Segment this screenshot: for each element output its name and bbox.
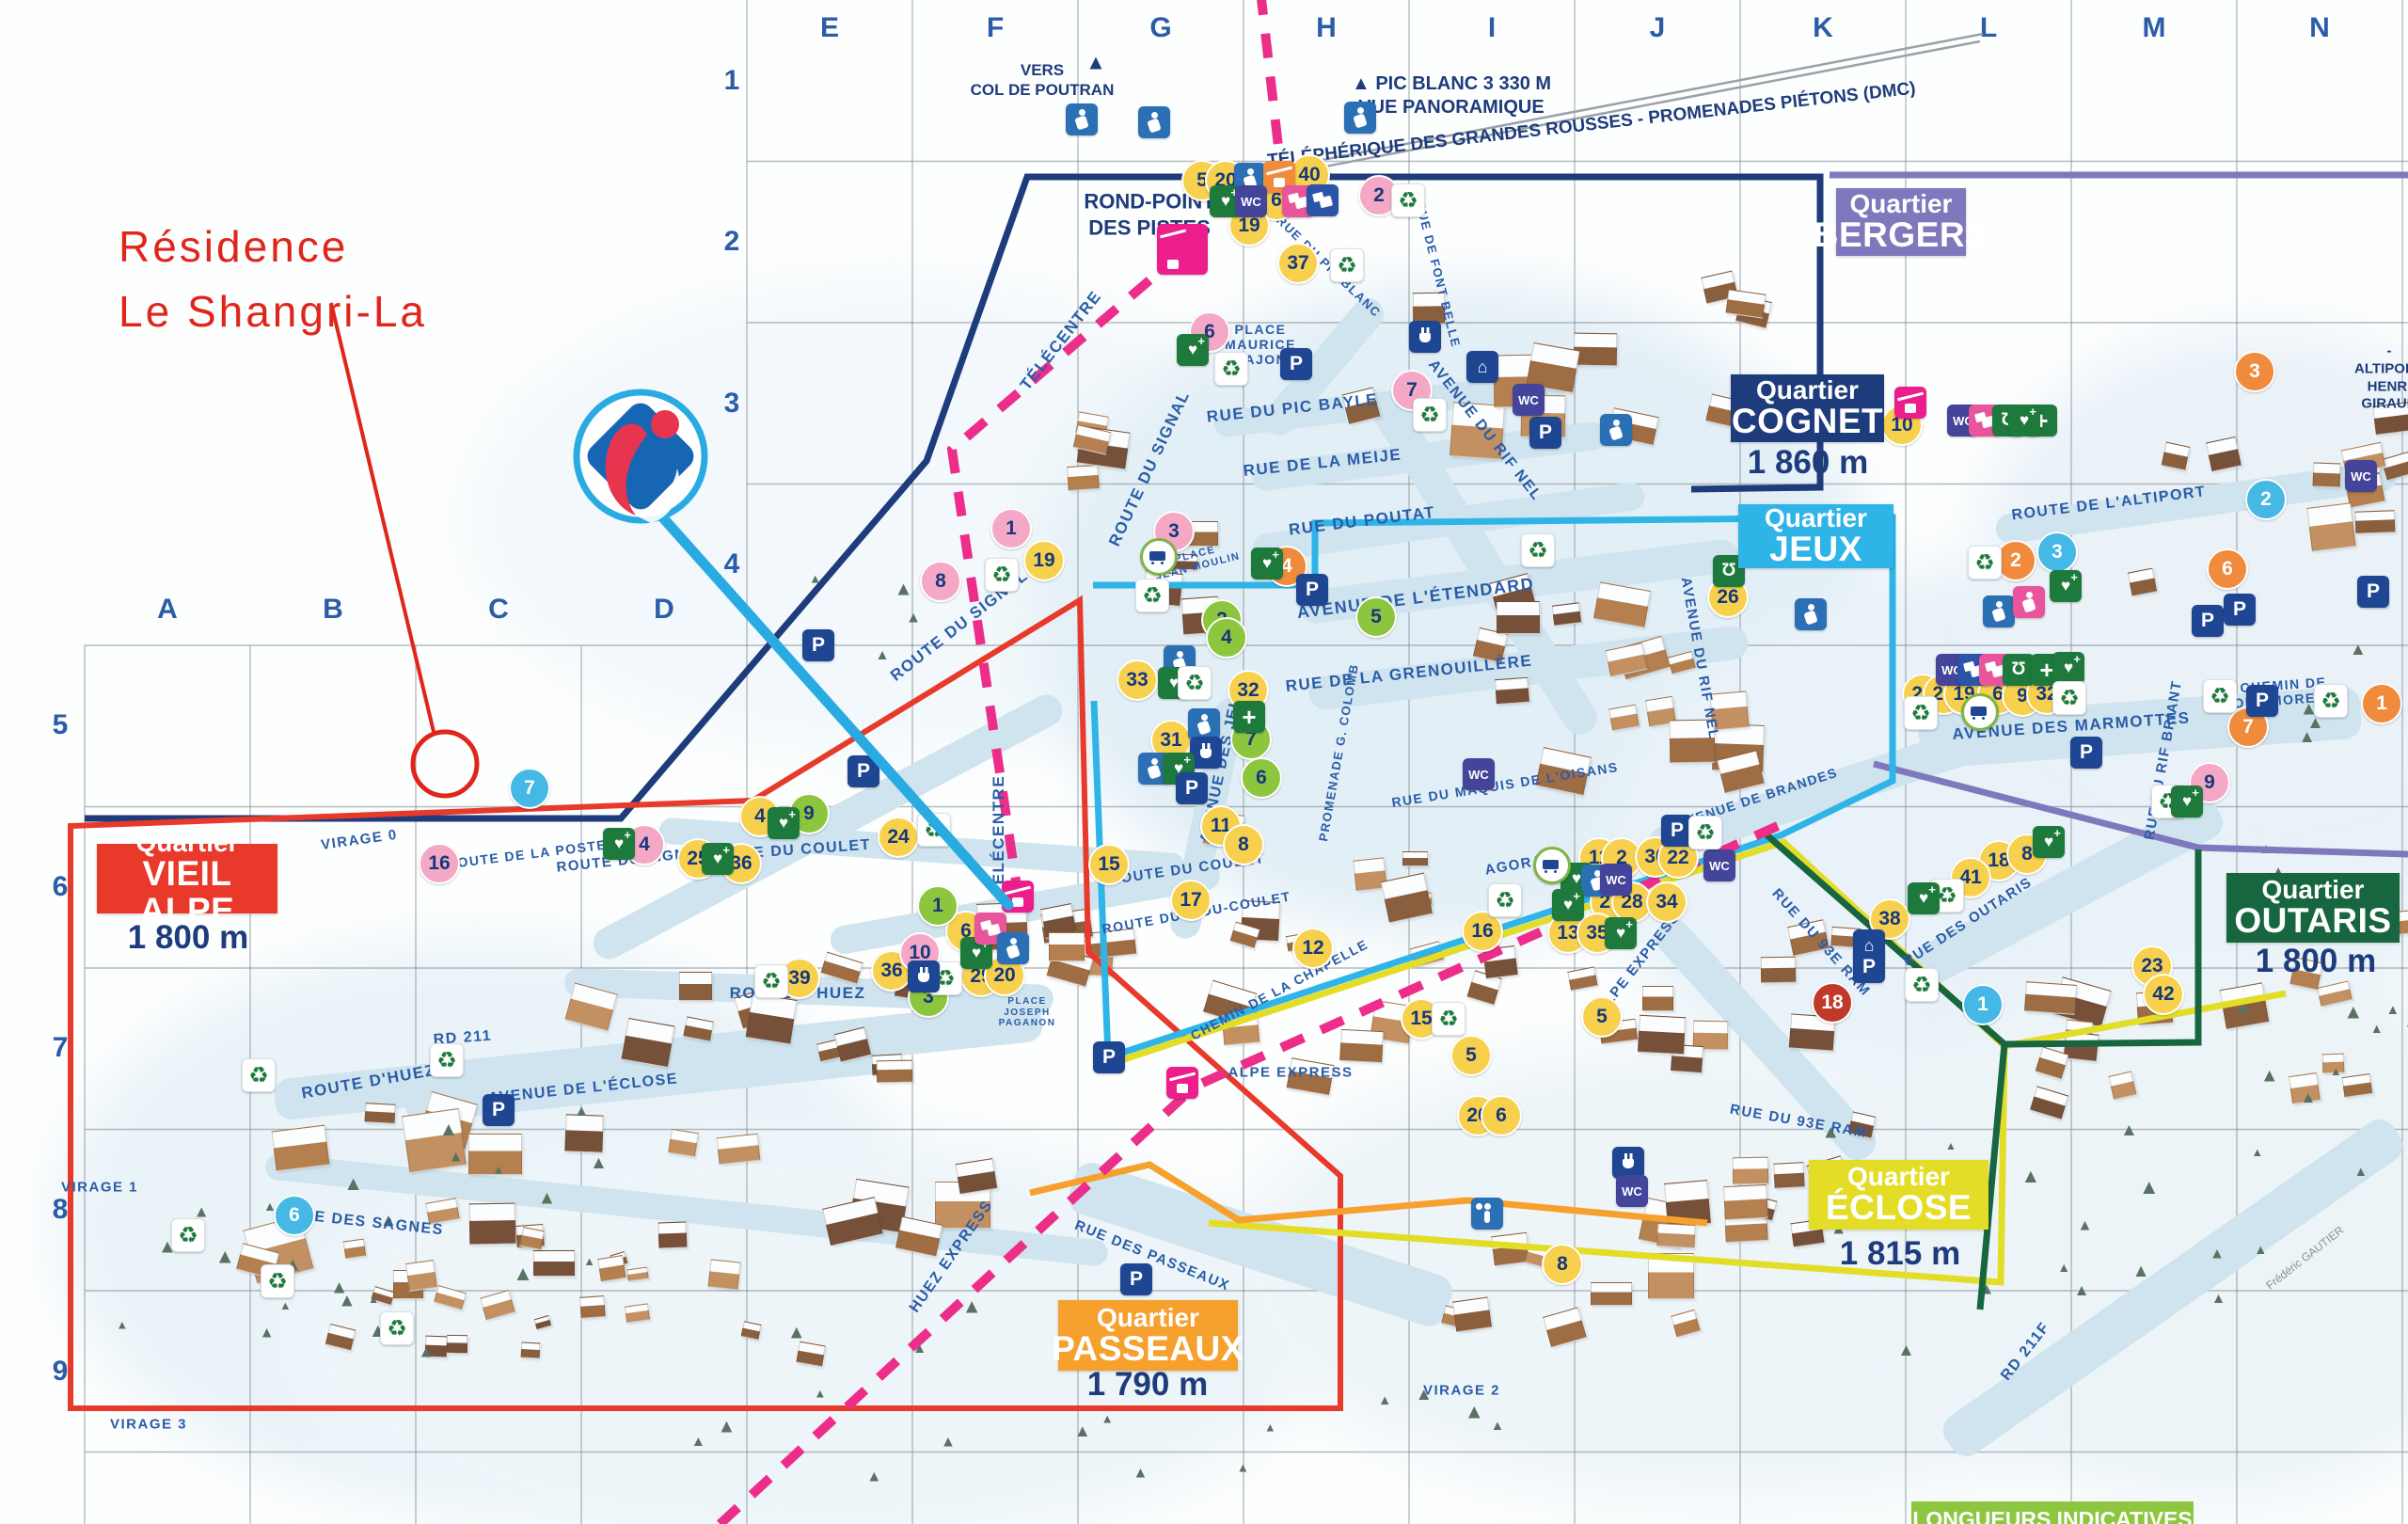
pine-tree: ▲ [439,1119,458,1141]
skier-icon [1138,106,1170,138]
recycle-icon: ♻ [242,1058,276,1092]
grid-col-label-B: B [323,594,343,626]
grid-row-label-7: 7 [53,1032,69,1064]
grid-row-label-4: 4 [724,548,740,580]
marker-pink-8: 8 [920,561,961,602]
hiker-icon [1066,103,1098,135]
building [679,972,712,1002]
cinema2-icon [1307,184,1339,216]
pine-tree: ▲ [1101,1411,1114,1425]
defib-icon: ♥ [2008,405,2040,437]
parking-icon: P [1120,1263,1152,1295]
plug-icon [1612,1147,1644,1179]
play-icon [1188,708,1220,740]
marker-yellow-8: 8 [1223,824,1264,865]
quarter-altitude-vieil-alpe: 1 800 m [128,919,248,957]
quarter-badge-passeaux: QuartierPASSEAUX [1058,1300,1238,1371]
toilets-icon [1471,1198,1503,1230]
quarter-altitude-passeaux: 1 790 m [1087,1366,1208,1404]
building [597,1255,626,1282]
defib-icon: ♥ [768,807,800,839]
marker-yellow-19: 19 [1023,540,1065,581]
parking-icon: P [802,629,834,661]
annotation-pointer-line [331,303,435,736]
building [1495,677,1529,705]
building [625,1303,651,1324]
grid-col-label-I: I [1488,12,1496,44]
pine-tree: ▲ [2386,1003,2400,1018]
pine-tree: ▲ [2211,1291,2226,1308]
pine-tree: ▲ [279,1299,292,1312]
recycle-icon: ♻ [1214,352,1248,386]
marker-yellow-6: 6 [1481,1095,1522,1136]
bus-icon [1961,693,1999,731]
pine-tree: ▲ [538,1187,556,1209]
lift-dmc [1260,0,1281,171]
grid-row-label-6: 6 [53,871,69,903]
pine-tree: ▲ [2350,639,2367,659]
marker-orange-6: 6 [2207,548,2248,590]
pine-tree: ▲ [513,1262,533,1286]
marker-green-6: 6 [1241,757,1282,799]
recycle-icon: ♻ [754,964,788,998]
parking-icon: P [483,1094,515,1126]
pine-tree: ▲ [912,1341,927,1357]
gondola-icon [1894,387,1926,419]
pine-tree: ▲ [1491,1419,1504,1434]
legend-longueurs: LONGUEURS INDICATIVES [1911,1501,2194,1524]
building [468,1203,515,1246]
pine-tree: ▲ [574,1102,589,1120]
defib-icon: ♥ [1552,889,1584,921]
wc-icon: WC [1600,864,1632,896]
pine-tree: ▲ [2260,1066,2279,1087]
pine-tree: ▲ [449,1148,464,1166]
gondola-icon [1166,1067,1198,1099]
grid-col-label-G: G [1149,12,1171,44]
building [1591,1282,1632,1307]
building [1067,465,1100,492]
wc-icon: WC [1513,384,1545,416]
recycle-icon: ♻ [1968,546,2002,579]
defib-icon: ♥ [1908,882,1940,914]
marker-green-5: 5 [1355,596,1397,638]
marker-yellow-12: 12 [1292,928,1334,969]
grid-row-label-1: 1 [724,65,740,97]
parking-icon: P [2246,685,2278,717]
grid-col-label-M: M [2143,12,2166,44]
pine-tree: ▲ [1897,1340,1915,1360]
recycle-icon: ♻ [1432,1002,1465,1036]
grid-col-label-J: J [1650,12,1666,44]
pine-tree: ▲ [2301,1088,2317,1107]
grid-row-label-3: 3 [724,388,740,420]
building [1551,602,1580,627]
pine-tree: ▲ [2139,1175,2160,1199]
plug-icon [908,960,940,992]
pine-tree: ▲ [2021,1166,2041,1188]
building [447,1335,467,1354]
marker-blue-3: 3 [2036,532,2078,573]
grid-col-label-E: E [820,12,839,44]
wc-icon: WC [1235,185,1267,217]
bus-icon [1140,538,1178,576]
defib-icon: ♥ [1251,548,1283,579]
marker-yellow-34: 34 [1646,881,1687,923]
marker-yellow-17: 17 [1170,880,1212,921]
pine-tree: ▲ [215,1246,235,1269]
pine-tree: ▲ [1978,1279,1994,1299]
building [796,1341,826,1367]
building [708,1260,741,1291]
building [1497,601,1540,634]
building [2064,1031,2099,1062]
recycle-icon: ♻ [2314,684,2348,718]
building [2024,981,2077,1015]
residence-annotation-title: Résidence Le Shangri-La [119,214,427,344]
bus-icon [1533,847,1571,884]
pine-tree: ▲ [1465,1400,1484,1423]
quarter-badge-line1: Quartier [1756,376,1859,404]
grid-col-label-K: K [1813,12,1833,44]
pine-tree: ▲ [117,1318,129,1332]
pine-tree: ▲ [1133,1464,1148,1482]
building [364,1103,395,1124]
pine-tree: ▲ [343,1173,363,1196]
building [1664,1180,1711,1228]
street-label-virage-0: VIRAGE 0 [320,827,399,853]
pine-tree: ▲ [2354,1165,2368,1180]
quarter-badge-line1: Quartier [1847,1163,1950,1190]
street-label-virage-1: VIRAGE 1 [61,1179,138,1195]
building [1733,1157,1768,1185]
pine-tree: ▲ [814,1387,826,1401]
building [1402,851,1427,866]
quarter-badge-eclose: QuartierÉCLOSE [1809,1160,1988,1230]
grid-col-label-N: N [2309,12,2330,44]
recycle-icon: ♻ [1905,968,1939,1002]
sledge-pink-icon [2013,586,2045,618]
pine-tree: ▲ [1237,1461,1249,1475]
grid-row-label-2: 2 [724,226,740,258]
marker-yellow-33: 33 [1117,659,1158,701]
building [2307,503,2356,552]
quarter-badge-cognet: QuartierCOGNET [1731,374,1884,442]
pine-tree: ▲ [866,1468,881,1486]
quarter-badge-name: COGNET [1732,404,1883,439]
baby-icon [997,932,1029,964]
landmark-pic-blanc: ▲ PIC BLANC 3 330 M VUE PANORAMIQUE [1352,72,1551,119]
building [271,1125,329,1171]
parking-icon: P [1280,348,1312,380]
recycle-icon: ♻ [2203,679,2237,713]
recycle-icon: ♻ [1330,248,1364,282]
quarter-badge-name: JEUX [1769,532,1862,567]
building [2162,441,2190,470]
residence-highlight-circle [413,732,477,796]
building [658,1222,688,1249]
building [1642,986,1673,1012]
building [2128,567,2157,595]
wc-icon: WC [1616,1175,1648,1207]
pine-tree: ▲ [590,1153,608,1174]
grid-row-label-8: 8 [53,1194,69,1226]
marker-blue-6: 6 [274,1195,315,1236]
marker-pink-1: 1 [990,508,1032,549]
pine-tree: ▲ [2077,1216,2092,1234]
building [1656,1223,1695,1248]
parking-icon: P [1176,772,1208,804]
marker-yellow-15: 15 [1088,844,1130,885]
marker-yellow-42: 42 [2143,974,2184,1015]
recycle-icon: ♻ [1178,666,1212,700]
pine-tree: ▲ [895,579,913,601]
skier-icon [1600,414,1632,446]
defib-icon: ♥ [702,843,734,875]
pine-tree: ▲ [338,1291,356,1312]
defib-icon: ♥ [603,828,635,860]
quarter-badge-line1: Quartier [1765,504,1867,532]
marker-blue-2: 2 [2245,479,2287,520]
building [580,1296,606,1320]
pine-tree: ▲ [368,1293,379,1306]
pine-tree: ▲ [809,572,821,586]
gondola-icon [1002,881,1034,913]
marker-green-4: 4 [1206,617,1247,659]
recycle-icon: ♻ [380,1311,414,1345]
building [1638,1015,1686,1055]
quarter-altitude-outaris: 1 800 m [2256,943,2376,980]
pine-tree: ▲ [2343,1001,2363,1024]
recycle-icon: ♻ [261,1264,294,1298]
quarter-badge-outaris: QuartierOUTARIS [2226,873,2400,943]
building [519,1227,544,1250]
recycle-icon: ♻ [1391,183,1425,217]
church-icon: ⌂ [1466,351,1498,383]
pine-tree: ▲ [2234,998,2252,1019]
building [1774,1162,1805,1189]
building [1648,1253,1694,1298]
resort-village-map: ABCDEFGHIJKLMN123456789 ▲▲▲▲▲▲▲▲▲▲▲▲▲▲▲▲… [0,0,2408,1524]
street-label-place-joseph-paganon: PLACE JOSEPH PAGANON [999,996,1056,1029]
marker-orange-1: 1 [2361,683,2402,724]
defib-icon: ♥ [1177,334,1209,366]
quarter-badge-vieil-alpe: QuartierVIEIL ALPE [97,844,277,913]
pine-tree: ▲ [1264,1421,1276,1435]
grid-row-label-5: 5 [53,709,69,741]
marker-blue-7: 7 [509,768,550,809]
building [1339,1029,1384,1063]
parking-icon: P [2070,737,2102,769]
recycle-icon: ♻ [1521,533,1555,567]
wc-icon: WC [1463,758,1495,790]
pharmacy-icon: + [1233,701,1265,733]
building [2342,1073,2373,1098]
defib-icon: ♥ [2033,826,2065,858]
marker-yellow-5: 5 [1581,996,1623,1038]
recycle-icon: ♻ [985,558,1019,592]
recycle-icon: ♻ [171,1218,205,1252]
pine-tree: ▲ [787,1323,806,1344]
quarter-badge-jeux: QuartierJEUX [1738,504,1893,568]
marker-darkred-18: 18 [1812,982,1853,1024]
parking-icon: P [1529,417,1561,449]
building [956,1158,998,1195]
pine-tree: ▲ [2254,1243,2267,1258]
pine-tree: ▲ [2210,1245,2225,1262]
recycle-icon: ♻ [1904,696,1938,730]
building [1567,966,1598,991]
building [1760,957,1795,983]
plug-icon [1409,321,1441,353]
quarter-badge-line1: Quartier [1850,190,1953,217]
pine-tree: ▲ [2259,842,2273,857]
parking-icon: P [2192,605,2224,637]
building [2206,437,2242,472]
pine-tree: ▲ [875,647,889,664]
pine-tree: ▲ [2330,1065,2341,1078]
defib-icon: ♥ [2171,786,2203,818]
recycle-icon: ♻ [1135,579,1169,612]
landmark-altiport-henri-giraud: - ALTIPORT HENRI GIRAUD [2354,343,2408,414]
wc-icon: WC [1703,849,1735,881]
grid-col-label-C: C [488,594,509,626]
quarter-badge-bergers: QuartierBERGERS [1836,188,1966,256]
street-label-virage-3: VIRAGE 3 [110,1416,187,1432]
building [1381,873,1433,924]
marker-blue-1: 1 [1962,984,2004,1025]
recycle-icon: ♻ [917,813,951,847]
grid-col-label-H: H [1316,12,1337,44]
marker-orange-3: 3 [2234,351,2275,392]
quarter-badge-name: ÉCLOSE [1826,1190,1972,1226]
grid-col-label-A: A [157,594,178,626]
quarter-badge-name: OUTARIS [2234,903,2391,939]
gondola-icon [1157,224,1208,275]
grid-row-label-9: 9 [53,1356,69,1388]
defib-icon: ♥ [2052,652,2084,684]
grid-col-label-F: F [987,12,1004,44]
sledge-icon [1795,598,1827,630]
pine-tree: ▲ [2057,1260,2070,1275]
recycle-icon: ♻ [430,1043,464,1077]
building [2354,510,2395,534]
recycle-icon: ♻ [1688,816,1722,849]
pine-tree: ▲ [2120,1119,2138,1140]
pine-tree: ▲ [1945,1139,1956,1152]
street-label-alpe-express: ALPE EXPRESS [1228,1064,1353,1080]
building [2108,1071,2136,1100]
pine-tree: ▲ [2252,1146,2264,1159]
pine-tree: ▲ [691,1434,705,1451]
quarter-badge-line1: Quartier [2262,876,2365,903]
landmark-poutran-arrow: ▲ [1085,49,1106,75]
marker-pink-16: 16 [419,843,460,884]
quarter-badge-name: BERGERS [1814,217,1988,253]
plug-icon [1190,737,1222,769]
quarter-badge-name: VIEIL ALPE [97,856,277,929]
building [533,1250,575,1277]
marker-yellow-24: 24 [878,817,919,858]
building [343,1239,367,1260]
parking-icon: P [1296,574,1328,606]
parking-icon: P [1093,1041,1125,1073]
building [621,1018,674,1068]
building [669,1129,700,1157]
sledge-icon [1983,595,2015,627]
pine-tree: ▲ [962,1295,982,1319]
building [405,1260,437,1292]
pine-tree: ▲ [906,609,921,627]
parking-icon: P [1853,951,1885,983]
street-label-telecentre: TÉLÉCENTRE [990,775,1008,896]
pine-tree: ▲ [493,1163,505,1177]
pine-tree: ▲ [717,1416,736,1437]
marker-green-1: 1 [917,885,958,927]
parking-icon: P [848,755,879,787]
quarter-badge-line1: Quartier [136,829,239,856]
recycle-icon: ♻ [1488,883,1522,917]
building [2313,463,2341,488]
marker-yellow-8: 8 [1542,1244,1583,1285]
building [876,1059,911,1083]
grid-col-label-D: D [654,594,674,626]
building [1049,932,1085,961]
quarter-altitude-eclose: 1 815 m [1840,1235,1960,1273]
doctor-icon: Ʊ [2003,654,2035,686]
pine-tree: ▲ [2132,1262,2150,1282]
pine-tree: ▲ [2074,1281,2090,1300]
building [1726,290,1767,319]
pine-tree: ▲ [260,1324,275,1341]
pine-tree: ▲ [1074,1421,1091,1441]
marker-yellow-5: 5 [1450,1035,1492,1076]
pine-tree: ▲ [2370,1021,2384,1036]
building [520,1341,540,1358]
recycle-icon: ♻ [1413,398,1447,432]
quarter-badge-name: PASSEAUX [1052,1331,1244,1367]
parking-icon: P [2224,594,2256,626]
grid-col-label-L: L [1980,12,1997,44]
skier-icon [1344,102,1376,134]
building [1452,1297,1492,1333]
recycle-icon: ♻ [2052,681,2086,715]
defib-icon: ♥ [2050,570,2082,602]
building [1723,1183,1768,1219]
pine-tree: ▲ [1378,1393,1391,1408]
marker-yellow-37: 37 [1277,243,1319,284]
pine-tree: ▲ [941,1433,956,1451]
pine-tree: ▲ [418,1341,434,1361]
building [1410,941,1444,968]
defib-icon: ♥ [1605,917,1637,949]
quarter-altitude-cognet: 1 860 m [1748,444,1868,482]
pine-tree: ▲ [583,1255,595,1268]
building [626,1266,649,1281]
quarter-badge-line1: Quartier [1097,1304,1199,1331]
street-label-virage-2: VIRAGE 2 [1423,1382,1500,1398]
parking-icon: P [2357,576,2389,608]
wc-icon: WC [2345,460,2377,492]
building [717,1134,761,1165]
